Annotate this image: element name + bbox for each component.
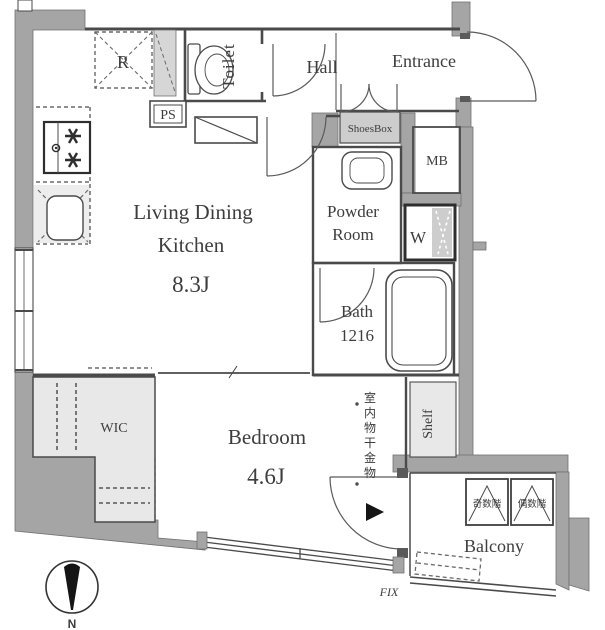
ldk-label-line2: Kitchen [158,233,225,257]
washer-hatch [432,208,452,257]
terrace-door-pad-top [397,468,408,478]
bedroom-size-label: 4.6J [247,464,285,489]
compass-north-label: N [68,617,77,630]
entrance-door-pad-top [460,33,470,39]
partition-tick [229,366,237,378]
washer-label: W [410,228,427,247]
wall-balcony-right [556,472,569,590]
balcony-dashed-rect [415,552,481,581]
bath-size-label: 1216 [340,326,374,345]
wall-notch [18,0,32,11]
door-direction-triangle-icon [366,503,384,521]
entrance-door [460,32,536,102]
shoesbox-doors [341,84,397,112]
bedroom-window-lines [204,537,398,571]
compass: N [46,561,98,630]
entrance-door-arc [467,32,536,101]
balcony-unit-dashed-box [415,552,481,581]
floor-plan: N R PS Toilet Hall Entrance ShoesBox MB … [0,0,605,630]
shoesbox-door-right [369,84,397,112]
kitchen [34,107,90,244]
powder-label-line2: Room [332,225,374,244]
wall-right-band [459,127,473,460]
powder-label-line1: Powder [327,202,379,221]
balcony [410,473,556,596]
shoesbox-label: ShoesBox [348,123,393,135]
bedroom-window-pad-right [393,557,404,573]
kitchen-sink [47,196,83,240]
wic-label: WIC [100,421,127,436]
bedroom-window-pad-left [197,532,207,549]
wall-under-door-stub [456,98,471,127]
refrigerator-label: R [117,52,129,72]
bath-label: Bath [341,302,374,321]
floor-plan-canvas: N R PS Toilet Hall Entrance ShoesBox MB … [0,0,605,630]
counter-box [195,117,257,143]
ldk-size-label: 8.3J [172,272,210,297]
powder-sink [342,152,392,189]
stove [44,122,90,173]
fix-window-label: FIX [379,585,399,599]
laundry-hardware-label: 室内物干金物 [364,390,376,480]
counter-diagonal [195,117,257,143]
wall-right-tick [473,242,486,250]
partition-odd-label: 奇数階 [473,498,502,510]
hall-label: Hall [307,57,338,77]
laundry-dot-bottom [355,482,358,485]
balcony-label: Balcony [464,536,524,556]
stove-knob-dot [55,147,57,149]
balcony-railing [410,577,556,596]
wall-bottom-right-block [569,518,589,591]
mb-label: MB [426,154,448,169]
ps-label: PS [160,108,176,123]
wall-top-right-stub [452,2,470,36]
toilet-label: Toilet [219,43,238,88]
duct-strip [154,30,176,96]
laundry-dot-top [355,402,358,405]
partition-even-label: 偶数階 [518,498,547,510]
bedroom-terrace-door [330,468,408,558]
bathtub [386,270,452,371]
bedroom-label: Bedroom [228,425,306,449]
entrance-label: Entrance [392,51,456,71]
bedroom-window [197,532,404,573]
shoesbox-door-left [341,84,369,112]
shelf-label: Shelf [421,409,436,439]
left-wall-window [15,248,33,372]
bathtub-outer [386,270,452,371]
ldk-label-line1: Living Dining [133,200,253,224]
